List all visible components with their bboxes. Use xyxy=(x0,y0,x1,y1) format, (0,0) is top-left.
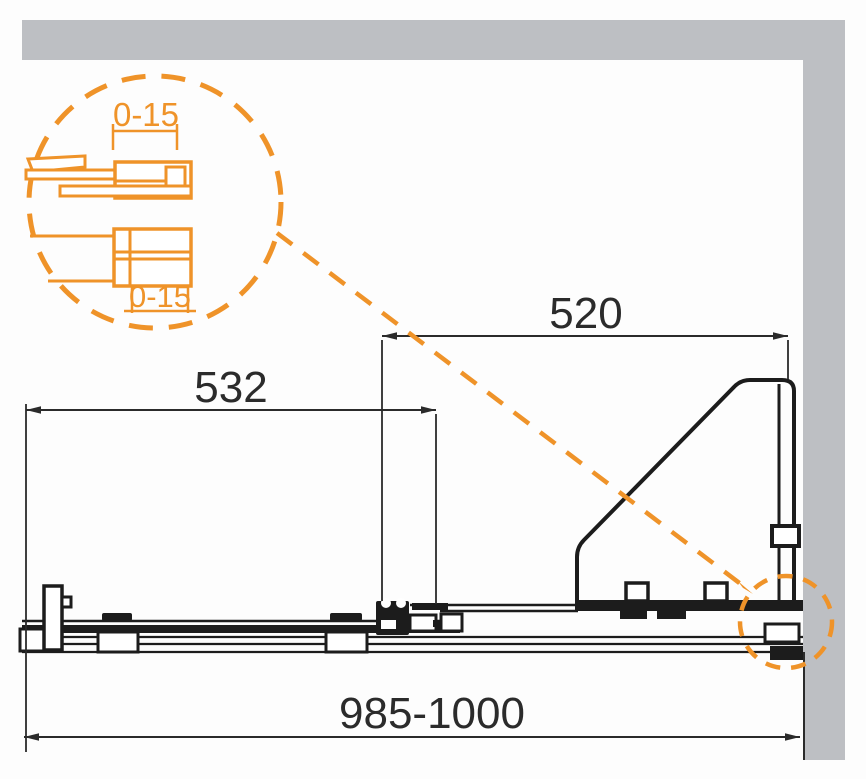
hanging-tab xyxy=(657,611,686,619)
shower-door-diagram: 532 520 985-1000 0-15 xyxy=(0,0,866,779)
dimension-label-fixed-panel: 520 xyxy=(549,289,622,338)
detail-upper-profile: 0-15 xyxy=(26,96,191,198)
arrowhead xyxy=(773,332,788,340)
wall-bracket-clamp xyxy=(772,526,799,546)
carriage-tab xyxy=(412,603,448,610)
slider-block xyxy=(98,632,138,652)
wall-profile-tab xyxy=(62,597,71,607)
panel-bottom-band xyxy=(575,600,803,611)
dimension-label-overall: 985-1000 xyxy=(339,689,525,738)
carriage-block xyxy=(441,614,462,631)
panel-clamp xyxy=(626,583,648,601)
roller-notch xyxy=(396,598,406,608)
technical-drawing-canvas: 532 520 985-1000 0-15 xyxy=(0,0,866,779)
detail-lower-profile: 0-15 xyxy=(30,229,196,314)
dimension-520: 520 xyxy=(382,289,788,601)
carriage-block xyxy=(410,615,436,631)
panel-outline xyxy=(577,380,794,602)
end-cap xyxy=(770,646,803,660)
detail-leader-line xyxy=(277,233,750,591)
carriage-pin xyxy=(433,620,440,627)
rail-tab xyxy=(102,613,132,621)
adjust-label-lower: 0-15 xyxy=(129,279,191,314)
leader-arrowhead xyxy=(738,581,754,594)
slider-block xyxy=(326,632,367,652)
adjust-label-upper: 0-15 xyxy=(113,96,179,133)
dimension-overall: 985-1000 xyxy=(24,689,800,741)
end-block xyxy=(765,624,799,642)
hanging-tab xyxy=(620,611,647,619)
rail-tab xyxy=(330,613,362,621)
bottom-strip xyxy=(60,186,191,196)
detail-callout: 0-15 0-15 xyxy=(26,76,832,668)
carriage-slot xyxy=(381,620,396,629)
panel-clamp xyxy=(705,583,727,601)
left-wall-profile xyxy=(44,586,71,650)
wall-profile-body xyxy=(44,586,62,650)
end-slider-block xyxy=(20,629,46,651)
top-wall xyxy=(22,20,844,60)
dimension-label-door: 532 xyxy=(194,363,267,412)
fixed-panel xyxy=(575,380,803,660)
roller-carriage xyxy=(376,598,462,635)
arrowhead xyxy=(26,406,41,414)
arrowhead xyxy=(382,332,397,340)
arrowhead xyxy=(785,733,800,741)
arrowhead xyxy=(421,406,436,414)
